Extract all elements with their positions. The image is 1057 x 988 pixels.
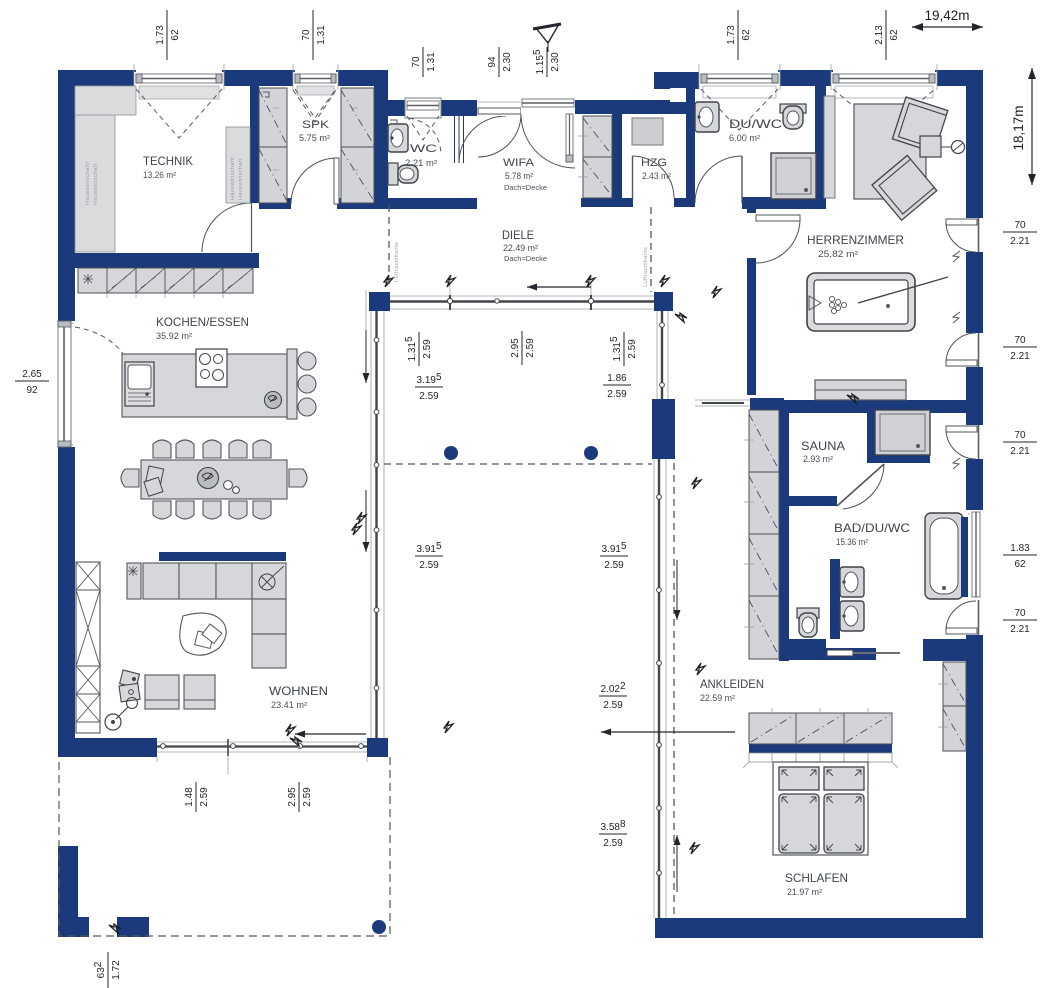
- svg-text:2.21 m²: 2.21 m²: [405, 158, 437, 168]
- svg-text:22.59 m²: 22.59 m²: [700, 693, 735, 703]
- svg-text:13.26 m²: 13.26 m²: [143, 170, 176, 180]
- svg-text:Hauswirtschaft/: Hauswirtschaft/: [230, 156, 236, 200]
- svg-text:2.59: 2.59: [603, 700, 623, 711]
- svg-text:2.21: 2.21: [1010, 624, 1030, 635]
- svg-text:HZG: HZG: [641, 157, 667, 169]
- svg-text:94: 94: [487, 56, 498, 68]
- svg-text:21.97 m²: 21.97 m²: [787, 887, 822, 897]
- svg-text:70: 70: [411, 56, 422, 68]
- svg-text:2.59: 2.59: [525, 338, 536, 358]
- svg-text:2.21: 2.21: [1010, 236, 1030, 247]
- svg-text:DIELE: DIELE: [502, 228, 534, 242]
- svg-text:2.59: 2.59: [199, 787, 210, 807]
- svg-text:1.31: 1.31: [316, 25, 327, 45]
- svg-text:KOCHEN/ESSEN: KOCHEN/ESSEN: [156, 315, 249, 329]
- svg-text:1.73: 1.73: [155, 25, 166, 45]
- svg-text:1.73: 1.73: [726, 25, 737, 45]
- svg-text:Luftraumkante: Luftraumkante: [394, 242, 400, 282]
- svg-text:2.59: 2.59: [627, 339, 638, 359]
- svg-text:35.92 m²: 35.92 m²: [156, 331, 192, 341]
- svg-text:SAUNA: SAUNA: [801, 439, 845, 453]
- svg-text:25.82 m²: 25.82 m²: [818, 249, 858, 259]
- svg-text:5.75 m²: 5.75 m²: [299, 133, 330, 143]
- svg-text:5.78 m²: 5.78 m²: [505, 171, 533, 181]
- svg-text:23.41 m²: 23.41 m²: [271, 700, 307, 710]
- svg-text:TECHNIK: TECHNIK: [143, 154, 193, 168]
- svg-text:2.30: 2.30: [550, 52, 561, 72]
- svg-text:2.21: 2.21: [1010, 446, 1030, 457]
- svg-text:1.31: 1.31: [426, 52, 437, 72]
- svg-text:ANKLEIDEN: ANKLEIDEN: [700, 677, 764, 691]
- svg-text:SCHLAFEN: SCHLAFEN: [785, 871, 848, 885]
- svg-text:2.59: 2.59: [607, 389, 627, 400]
- svg-text:62: 62: [889, 29, 900, 41]
- svg-text:SPK: SPK: [302, 119, 330, 131]
- svg-text:70: 70: [301, 29, 312, 41]
- svg-text:18,17m: 18,17m: [1011, 105, 1026, 150]
- svg-text:DU/WC: DU/WC: [729, 117, 782, 131]
- svg-text:WOHNEN: WOHNEN: [269, 684, 328, 698]
- svg-text:1.83: 1.83: [1010, 543, 1030, 554]
- svg-text:62: 62: [1014, 559, 1026, 570]
- svg-text:2.43 m²: 2.43 m²: [642, 171, 671, 181]
- svg-text:2.59: 2.59: [302, 787, 313, 807]
- svg-text:WIFA: WIFA: [503, 157, 535, 169]
- svg-text:2.30: 2.30: [502, 52, 513, 72]
- svg-text:Hauswirtschaft/: Hauswirtschaft/: [85, 161, 91, 205]
- svg-text:92: 92: [26, 385, 38, 396]
- svg-text:2.59: 2.59: [603, 838, 623, 849]
- svg-text:2.93 m²: 2.93 m²: [803, 454, 833, 464]
- svg-text:HERRENZIMMER: HERRENZIMMER: [807, 233, 904, 247]
- svg-text:Hauswirtschaft: Hauswirtschaft: [93, 163, 99, 205]
- svg-text:22.49 m²: 22.49 m²: [503, 243, 538, 253]
- svg-text:19,42m: 19,42m: [924, 8, 969, 23]
- svg-text:2.95: 2.95: [510, 338, 521, 358]
- svg-text:70: 70: [1014, 430, 1026, 441]
- svg-text:BAD/DU/WC: BAD/DU/WC: [834, 521, 910, 535]
- svg-text:70: 70: [1014, 335, 1026, 346]
- svg-text:2.59: 2.59: [419, 560, 439, 571]
- svg-text:Hauswirtschaft: Hauswirtschaft: [238, 158, 244, 200]
- svg-text:2.21: 2.21: [1010, 351, 1030, 362]
- svg-text:70: 70: [1014, 220, 1026, 231]
- svg-text:2.59: 2.59: [604, 560, 624, 571]
- svg-text:2.65: 2.65: [22, 369, 42, 380]
- svg-text:2.95: 2.95: [287, 787, 298, 807]
- svg-text:2.59: 2.59: [419, 391, 439, 402]
- svg-text:1.48: 1.48: [184, 787, 195, 807]
- svg-text:1.72: 1.72: [111, 960, 122, 980]
- svg-text:2.13: 2.13: [874, 25, 885, 45]
- svg-text:70: 70: [1014, 608, 1026, 619]
- svg-text:Dach=Decke: Dach=Decke: [504, 254, 547, 263]
- svg-text:1.86: 1.86: [607, 373, 627, 384]
- svg-text:WC: WC: [410, 143, 437, 155]
- svg-text:Dach=Decke: Dach=Decke: [504, 183, 547, 192]
- svg-text:62: 62: [741, 29, 752, 41]
- svg-text:62: 62: [170, 29, 181, 41]
- svg-text:15.36 m²: 15.36 m²: [836, 537, 868, 547]
- svg-text:6.00 m²: 6.00 m²: [729, 133, 760, 143]
- svg-text:Luftraumkante: Luftraumkante: [643, 247, 649, 287]
- svg-text:2.59: 2.59: [422, 339, 433, 359]
